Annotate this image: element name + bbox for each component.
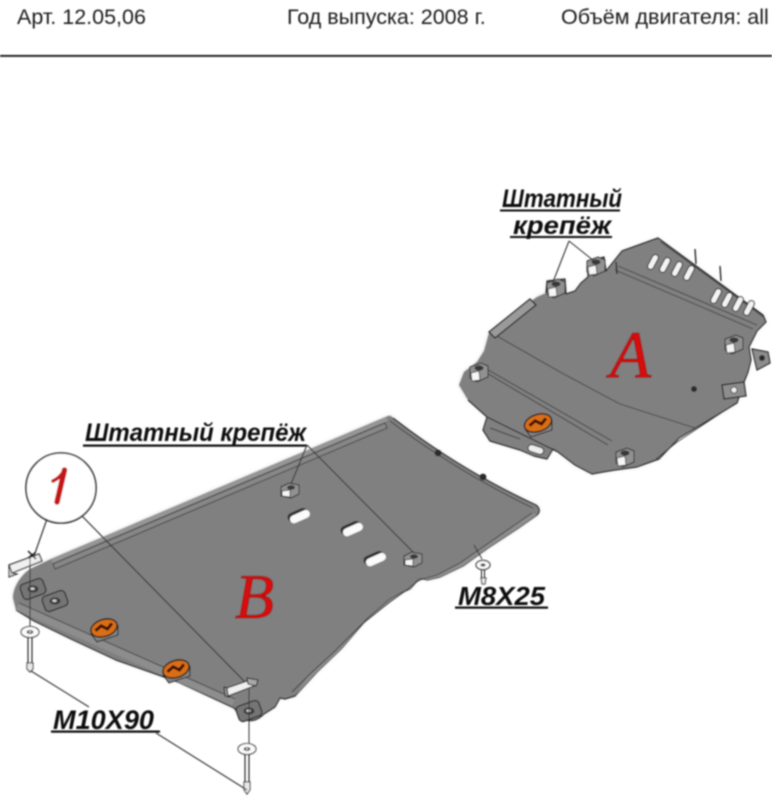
svg-text:A: A — [606, 318, 652, 392]
svg-text:Год выпуска: 2008 г.: Год выпуска: 2008 г. — [287, 5, 486, 29]
svg-text:Арт. 12.05,06: Арт. 12.05,06 — [17, 5, 146, 29]
svg-text:крепёж: крепёж — [513, 212, 613, 240]
svg-text:Штатный крепёж: Штатный крепёж — [85, 419, 308, 447]
svg-text:B: B — [235, 561, 274, 632]
svg-text:Объём двигателя: all: Объём двигателя: all — [561, 5, 769, 29]
svg-text:Штатный: Штатный — [502, 185, 622, 213]
